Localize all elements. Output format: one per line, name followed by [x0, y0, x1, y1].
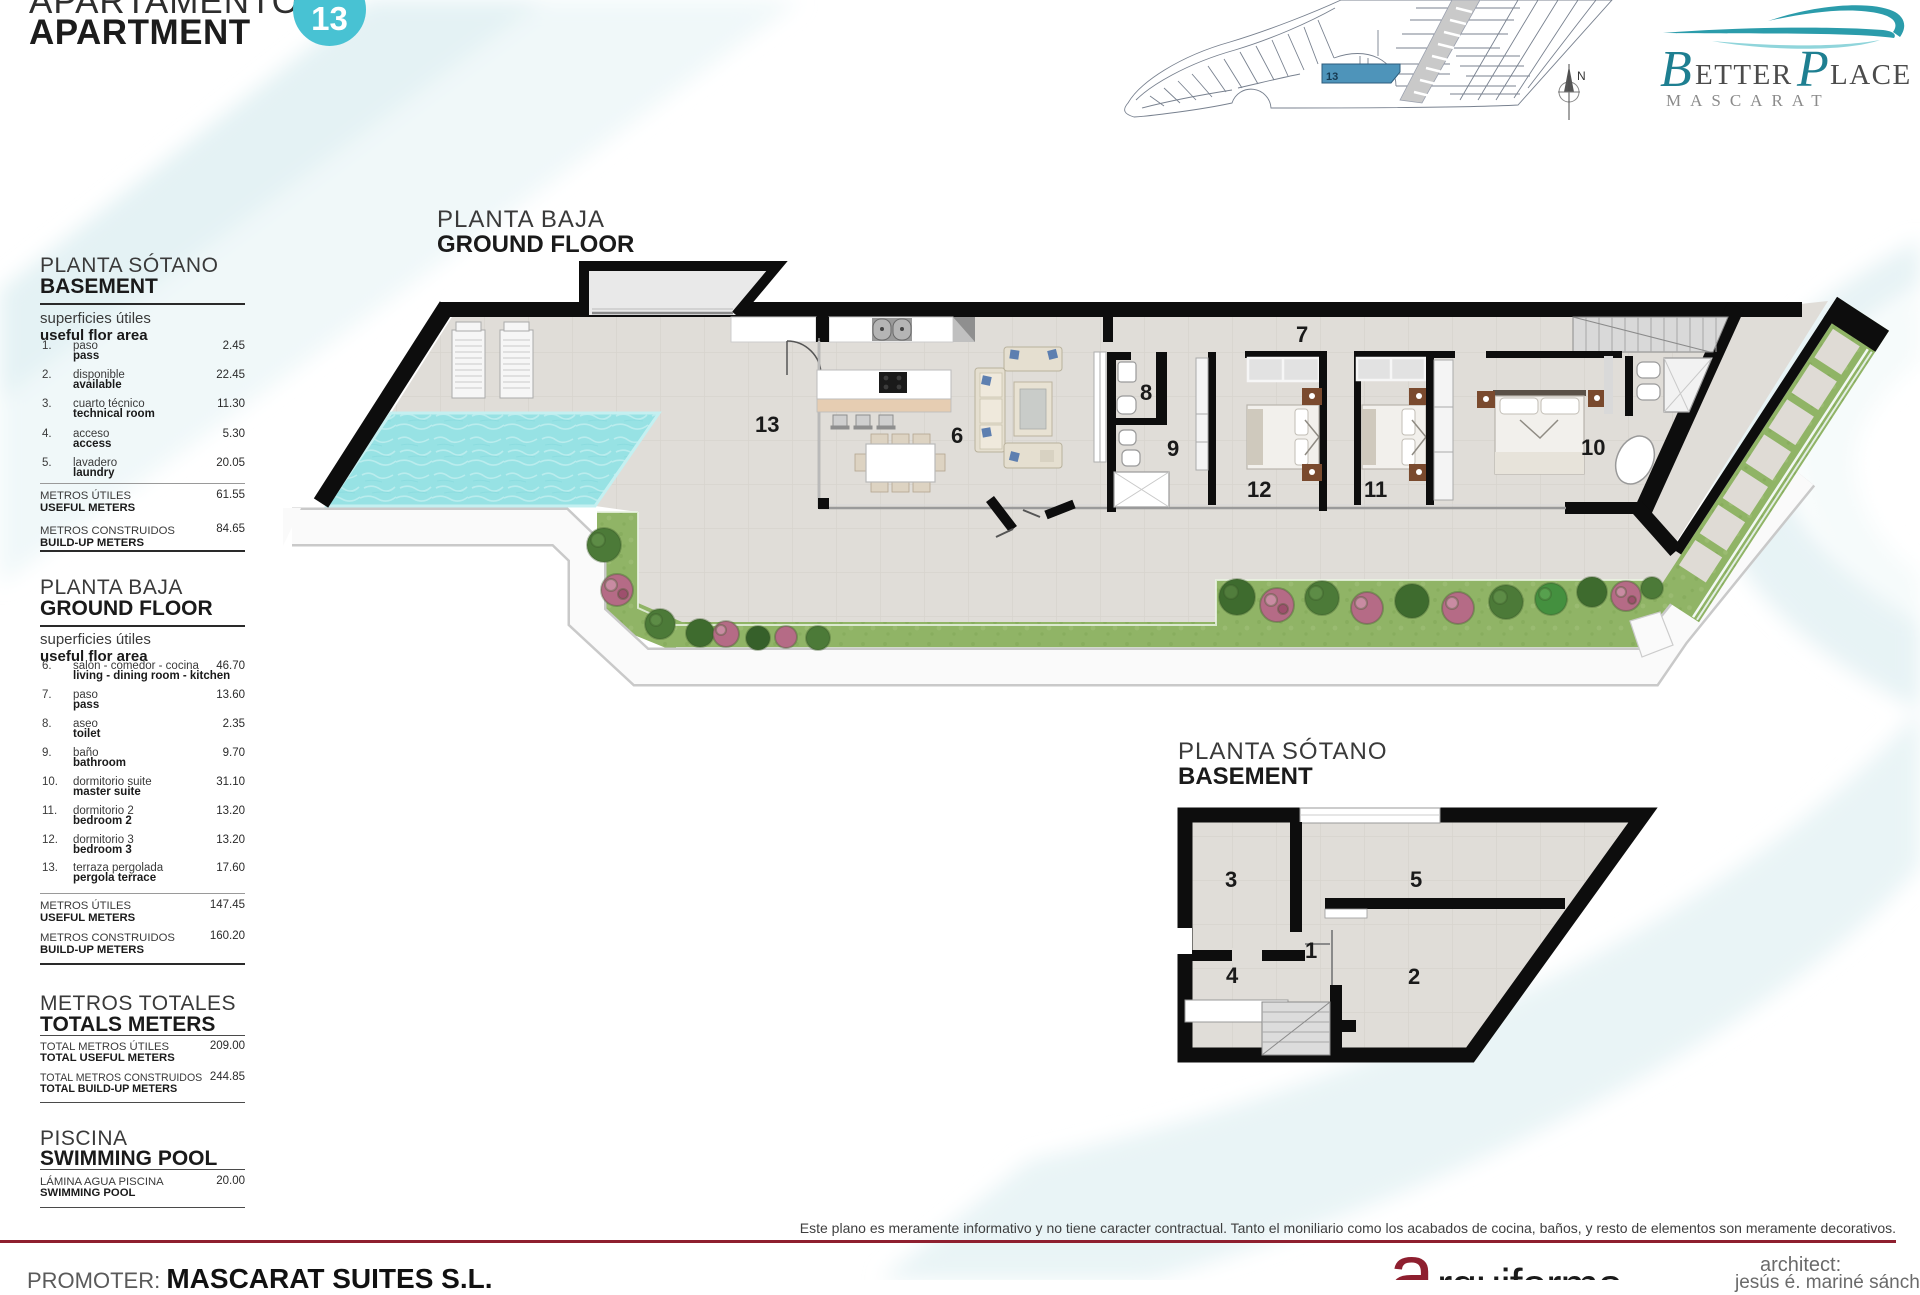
svg-text:13: 13 — [1326, 71, 1338, 83]
svg-text:N: N — [1577, 69, 1586, 83]
svg-text:MASCARAT: MASCARAT — [1666, 91, 1831, 110]
svg-text:ETTER: ETTER — [1695, 59, 1793, 91]
svg-text:rquiforma: rquiforma — [1437, 1259, 1624, 1280]
svg-text:3: 3 — [1225, 867, 1237, 892]
svg-text:4: 4 — [1226, 963, 1239, 988]
svg-text:2: 2 — [1408, 964, 1420, 989]
svg-text:B: B — [1660, 41, 1692, 98]
svg-text:P: P — [1796, 41, 1829, 98]
svg-text:1: 1 — [1305, 938, 1317, 963]
svg-text:5: 5 — [1410, 867, 1422, 892]
svg-text:LACE: LACE — [1830, 59, 1912, 91]
svg-text:a: a — [1389, 1228, 1435, 1280]
